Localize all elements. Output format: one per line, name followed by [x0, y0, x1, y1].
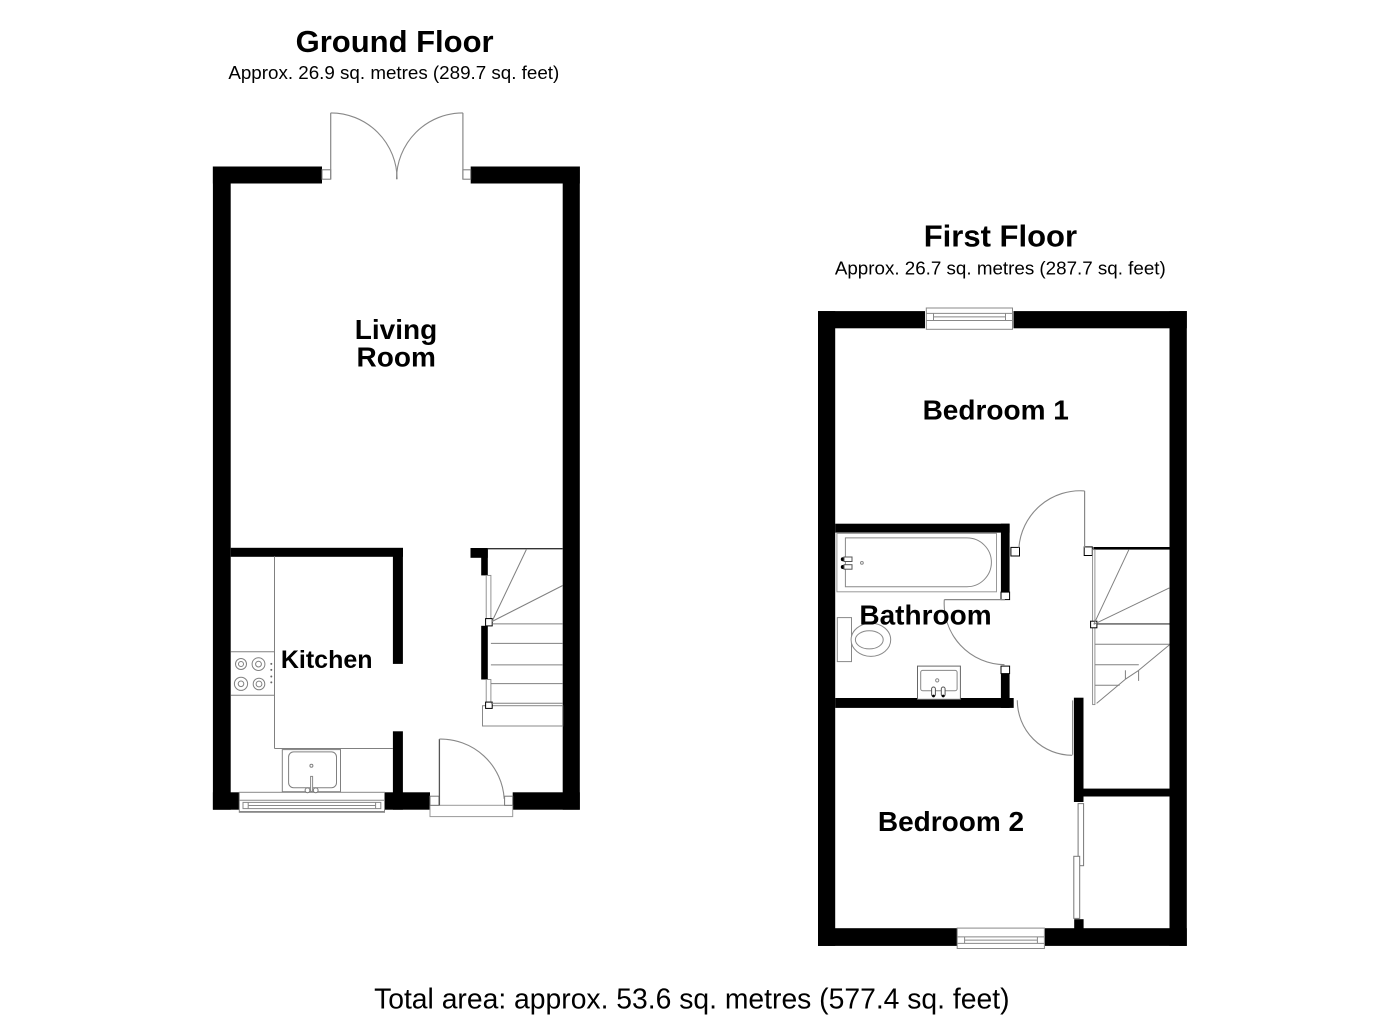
svg-text:Room: Room	[357, 342, 436, 373]
svg-text:Bedroom 1: Bedroom 1	[923, 394, 1069, 425]
svg-text:Living: Living	[355, 314, 437, 345]
svg-text:Approx. 26.7 sq. metres (287.7: Approx. 26.7 sq. metres (287.7 sq. feet)	[835, 258, 1166, 279]
svg-text:Ground Floor: Ground Floor	[296, 24, 494, 59]
svg-text:Bedroom 2: Bedroom 2	[878, 806, 1024, 837]
svg-text:Kitchen: Kitchen	[281, 646, 373, 674]
svg-text:First Floor: First Floor	[924, 219, 1077, 254]
svg-text:Total area: approx. 53.6 sq. m: Total area: approx. 53.6 sq. metres (577…	[374, 983, 1009, 1015]
svg-text:Bathroom: Bathroom	[859, 599, 991, 630]
svg-text:Approx. 26.9 sq. metres (289.7: Approx. 26.9 sq. metres (289.7 sq. feet)	[228, 62, 559, 83]
